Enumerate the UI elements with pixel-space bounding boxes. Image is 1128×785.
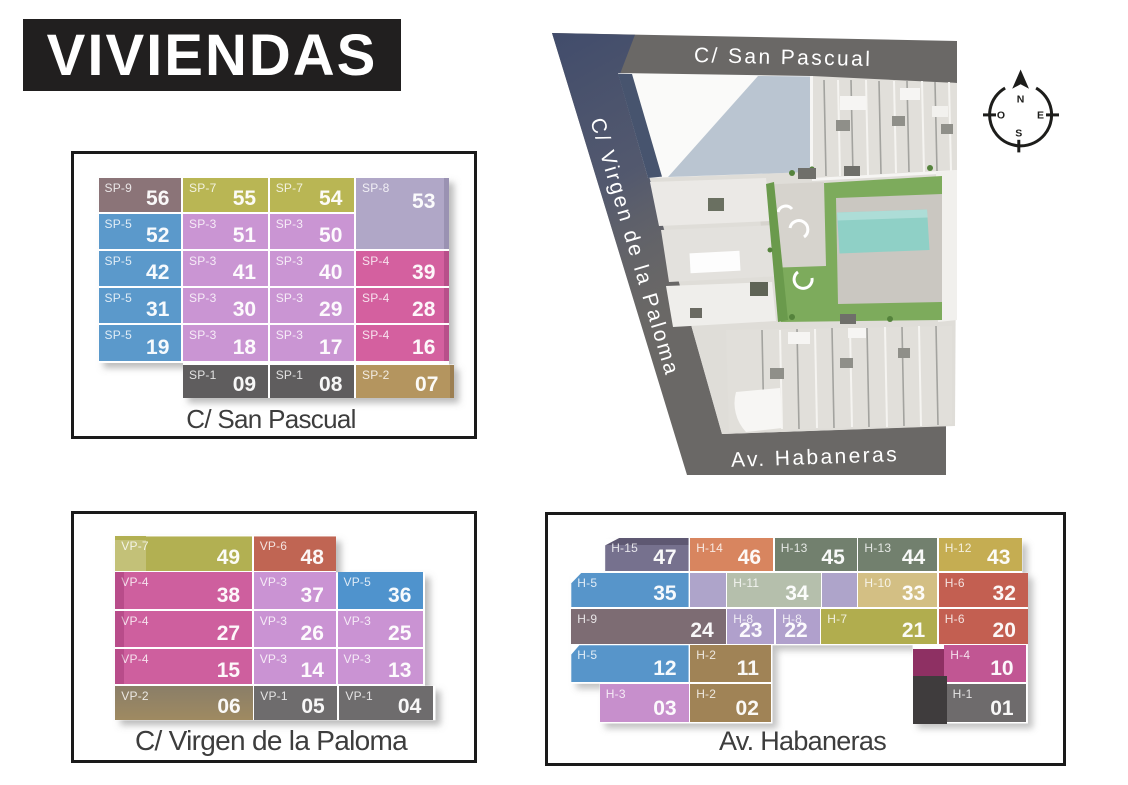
svg-text:N: N (1017, 94, 1025, 106)
svg-text:O: O (997, 110, 1005, 122)
svg-text:S: S (1015, 128, 1022, 140)
svg-text:C/ San Pascual: C/ San Pascual (694, 44, 873, 71)
svg-text:E: E (1037, 110, 1044, 122)
